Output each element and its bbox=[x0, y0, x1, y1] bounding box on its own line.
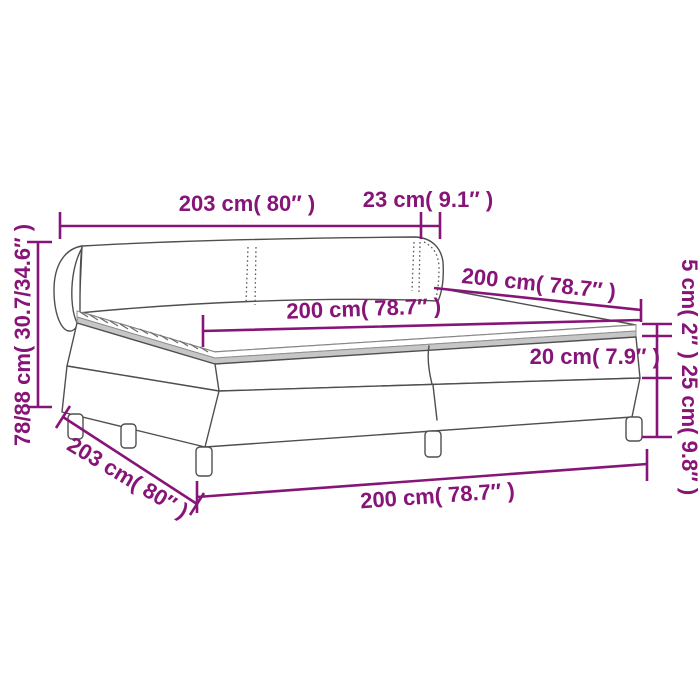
dim-headboard-height: 78/88 cm( 30.7/34.6″ ) bbox=[10, 224, 52, 446]
bed-leg bbox=[196, 447, 212, 476]
dimension-label: 78/88 cm( 30.7/34.6″ ) bbox=[10, 224, 35, 446]
bed-leg bbox=[121, 424, 136, 448]
dimension-line bbox=[60, 212, 440, 239]
dimension-label: 20 cm( 7.9″ ) bbox=[530, 344, 660, 369]
dimension-label: 5 cm( 2″ ) bbox=[677, 259, 700, 359]
dim-base-length: 200 cm( 78.7″ ) bbox=[197, 449, 647, 513]
dim-headboard-depth: 23 cm( 9.1″ ) bbox=[363, 187, 493, 212]
bed-leg bbox=[425, 431, 441, 457]
dimension-label: 25 cm( 9.8″ ) bbox=[677, 365, 700, 495]
dimension-label: 23 cm( 9.1″ ) bbox=[363, 187, 493, 212]
dimension-diagram: 203 cm( 80″ ) 23 cm( 9.1″ ) 78/88 cm( 30… bbox=[0, 0, 700, 700]
dimension-label: 203 cm( 80″ ) bbox=[179, 191, 316, 216]
bed-leg bbox=[626, 417, 642, 441]
dimension-line bbox=[642, 324, 672, 437]
